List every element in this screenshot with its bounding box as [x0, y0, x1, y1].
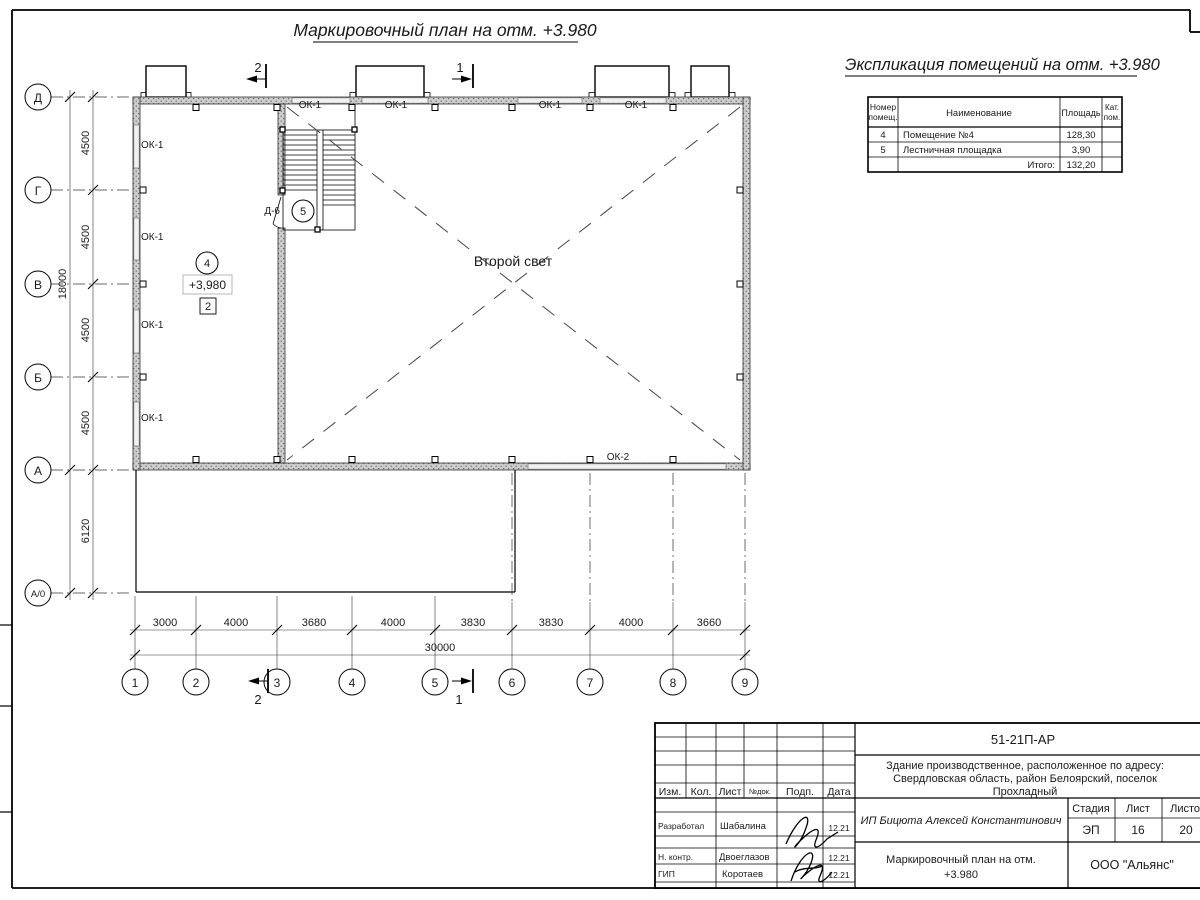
void-cross	[287, 107, 740, 460]
window-label-ok1: ОК-1	[141, 140, 164, 151]
tb-header-data: Дата	[827, 786, 850, 798]
cell-room-num: 4	[880, 130, 885, 141]
col-header-num: Номер	[870, 102, 896, 112]
tb-name: Шабалина	[720, 821, 767, 832]
axis-col-label: 9	[742, 676, 749, 690]
tb-date: 12.21	[828, 870, 850, 880]
total-label: Итого:	[1027, 160, 1055, 171]
dim-bottom: 4000	[619, 617, 643, 629]
title-block: Изм. Кол. Лист №док. Подп. Дата Разработ…	[655, 723, 1200, 888]
cell-room-area: 128,30	[1066, 130, 1095, 141]
dim-bottom: 3680	[302, 617, 326, 629]
dim-bottom: 3660	[697, 617, 721, 629]
tb-doc-title: Маркировочный план на отм.	[886, 854, 1036, 866]
tb-header-izm: Изм.	[659, 786, 682, 798]
section-mark-2-top: 2	[246, 60, 266, 88]
window-label-ok1: ОК-1	[385, 100, 408, 111]
window-label-ok1: ОК-1	[299, 100, 322, 111]
axis-row-label: В	[34, 278, 42, 292]
col-header-cat: Кат.	[1105, 103, 1119, 112]
window-label-ok1: ОК-1	[625, 100, 648, 111]
axis-grid-rows: Д Г В Б А А/0	[25, 84, 130, 606]
axis-col-label: 6	[509, 676, 516, 690]
window-label-ok2: ОК-2	[607, 452, 630, 463]
tb-name: Коротаев	[722, 869, 763, 880]
tb-doc-title: +3.980	[944, 869, 978, 881]
tb-role: Н. контр.	[658, 852, 693, 862]
axis-col-label: 4	[349, 676, 356, 690]
dim-left: 4500	[80, 318, 92, 342]
room5-tag: 5 Д-6	[264, 200, 314, 222]
tb-date: 12.21	[828, 823, 850, 833]
axis-col-label: 1	[132, 676, 139, 690]
interior-wall-upper	[278, 104, 285, 195]
dim-bottom: 4000	[224, 617, 248, 629]
section-label: 1	[456, 60, 463, 75]
elevation-mark: +3,980	[189, 278, 226, 292]
tb-stage-value: ЭП	[1082, 823, 1099, 837]
dim-bottom: 3830	[539, 617, 563, 629]
window-label-ok1: ОК-1	[539, 100, 562, 111]
dim-bottom: 3000	[153, 617, 177, 629]
window-label-ok1: ОК-1	[141, 232, 164, 243]
tb-date: 12.21	[828, 853, 850, 863]
staircase	[280, 104, 357, 232]
tb-stage-label: Стадия	[1072, 803, 1110, 815]
tb-header-list: Лист	[719, 786, 742, 798]
dim-left: 4500	[80, 411, 92, 435]
explication: Экспликация помещений на отм. +3.980 Ном…	[845, 56, 1161, 172]
interior-wall-lower	[278, 228, 285, 463]
tb-sheet-label: Лист	[1126, 803, 1150, 815]
cell-room-name: Помещение №4	[903, 130, 974, 141]
axis-row-label: А/0	[31, 589, 45, 600]
tb-client: ИП Бицюта Алексей Константинович	[861, 815, 1062, 827]
axis-row-label: Г	[35, 184, 42, 198]
tb-address-line: Свердловская область, район Белоярский, …	[893, 773, 1157, 785]
col-header-num: помещ.	[868, 112, 897, 122]
axis-col-label: 2	[193, 676, 200, 690]
dimensions-bottom: 3000 4000 3680 4000 3830 3830 4000 3660 …	[130, 617, 750, 660]
tb-sheets-value: 20	[1179, 823, 1193, 837]
axis-row-label: Д	[34, 91, 42, 105]
cell-room-num: 5	[880, 145, 885, 156]
dim-left: 4500	[80, 225, 92, 249]
axis-row-label: Б	[34, 371, 42, 385]
axis-row-label: А	[34, 464, 42, 478]
door-label: Д-6	[264, 206, 280, 217]
plan-title: Маркировочный план на отм. +3.980	[293, 20, 597, 42]
col-header-area: Площадь	[1061, 108, 1100, 118]
section-mark-1-top: 1	[452, 60, 473, 88]
tb-name: Двоеглазов	[719, 852, 770, 863]
room5-number: 5	[300, 206, 306, 218]
col-header-cat: пом.	[1104, 113, 1121, 122]
axis-col-label: 3	[274, 676, 281, 690]
section-mark-1-bottom: 1	[452, 669, 473, 707]
tb-address-line: Здание производственное, расположенное п…	[886, 760, 1164, 772]
explication-table: Номер помещ. Наименование Площадь Кат. п…	[868, 97, 1122, 172]
dim-left: 4500	[80, 131, 92, 155]
dimensions-left: 4500 4500 4500 4500 6120 18000	[57, 90, 98, 600]
drawing-sheet: Маркировочный план на отм. +3.980	[0, 0, 1200, 900]
tb-role: Разработал	[658, 821, 704, 831]
axis-col-label: 8	[670, 676, 677, 690]
section-label: 1	[455, 692, 462, 707]
dim-bottom: 3830	[461, 617, 485, 629]
dim-left: 6120	[80, 519, 92, 543]
tb-header-doc: №док.	[749, 787, 771, 796]
cell-room-name: Лестничная площадка	[903, 145, 1003, 156]
room4-tag: 4 +3,980 2	[183, 252, 232, 314]
drawing-canvas: Маркировочный план на отм. +3.980	[0, 0, 1200, 900]
explication-heading: Экспликация помещений на отм. +3.980	[845, 56, 1161, 74]
section-label: 2	[254, 692, 261, 707]
roof-protrusions	[141, 66, 735, 98]
cell-room-area: 3,90	[1072, 145, 1091, 156]
zone-mark: 2	[205, 301, 211, 313]
tb-role: ГИП	[658, 869, 675, 879]
page-title: Маркировочный план на отм. +3.980	[293, 20, 597, 40]
tb-company: ООО "Альянс"	[1090, 858, 1174, 872]
dim-left-total: 18000	[57, 269, 69, 300]
axis-col-label: 5	[432, 676, 439, 690]
dim-bottom: 4000	[381, 617, 405, 629]
dim-bottom-total: 30000	[425, 642, 456, 654]
tb-header-kol: Кол.	[691, 786, 712, 798]
window-label-ok1: ОК-1	[141, 413, 164, 424]
right-wall	[743, 97, 750, 470]
second-light-label: Второй свет	[474, 253, 553, 269]
total-value: 132,20	[1066, 160, 1095, 171]
col-header-name: Наименование	[946, 108, 1012, 119]
axis-col-label: 7	[587, 676, 594, 690]
tb-address-line: Прохладный	[993, 786, 1058, 798]
floor-plan: ОК-1 ОК-1 ОК-1 ОК-1 ОК-1 ОК-1 ОК-1 ОК-1 …	[133, 66, 750, 592]
annex-outline	[136, 470, 515, 592]
tb-header-podp: Подп.	[786, 786, 814, 798]
tb-doc-code: 51-21П-АР	[991, 732, 1055, 747]
tb-sheets-label: Листов	[1170, 803, 1200, 815]
window-label-ok1: ОК-1	[141, 320, 164, 331]
section-label: 2	[254, 60, 261, 75]
axis-grid-cols: 1 2 3 4 5 6 7 8 9	[122, 473, 758, 695]
room4-number: 4	[204, 258, 210, 270]
tb-sheet-value: 16	[1131, 823, 1145, 837]
